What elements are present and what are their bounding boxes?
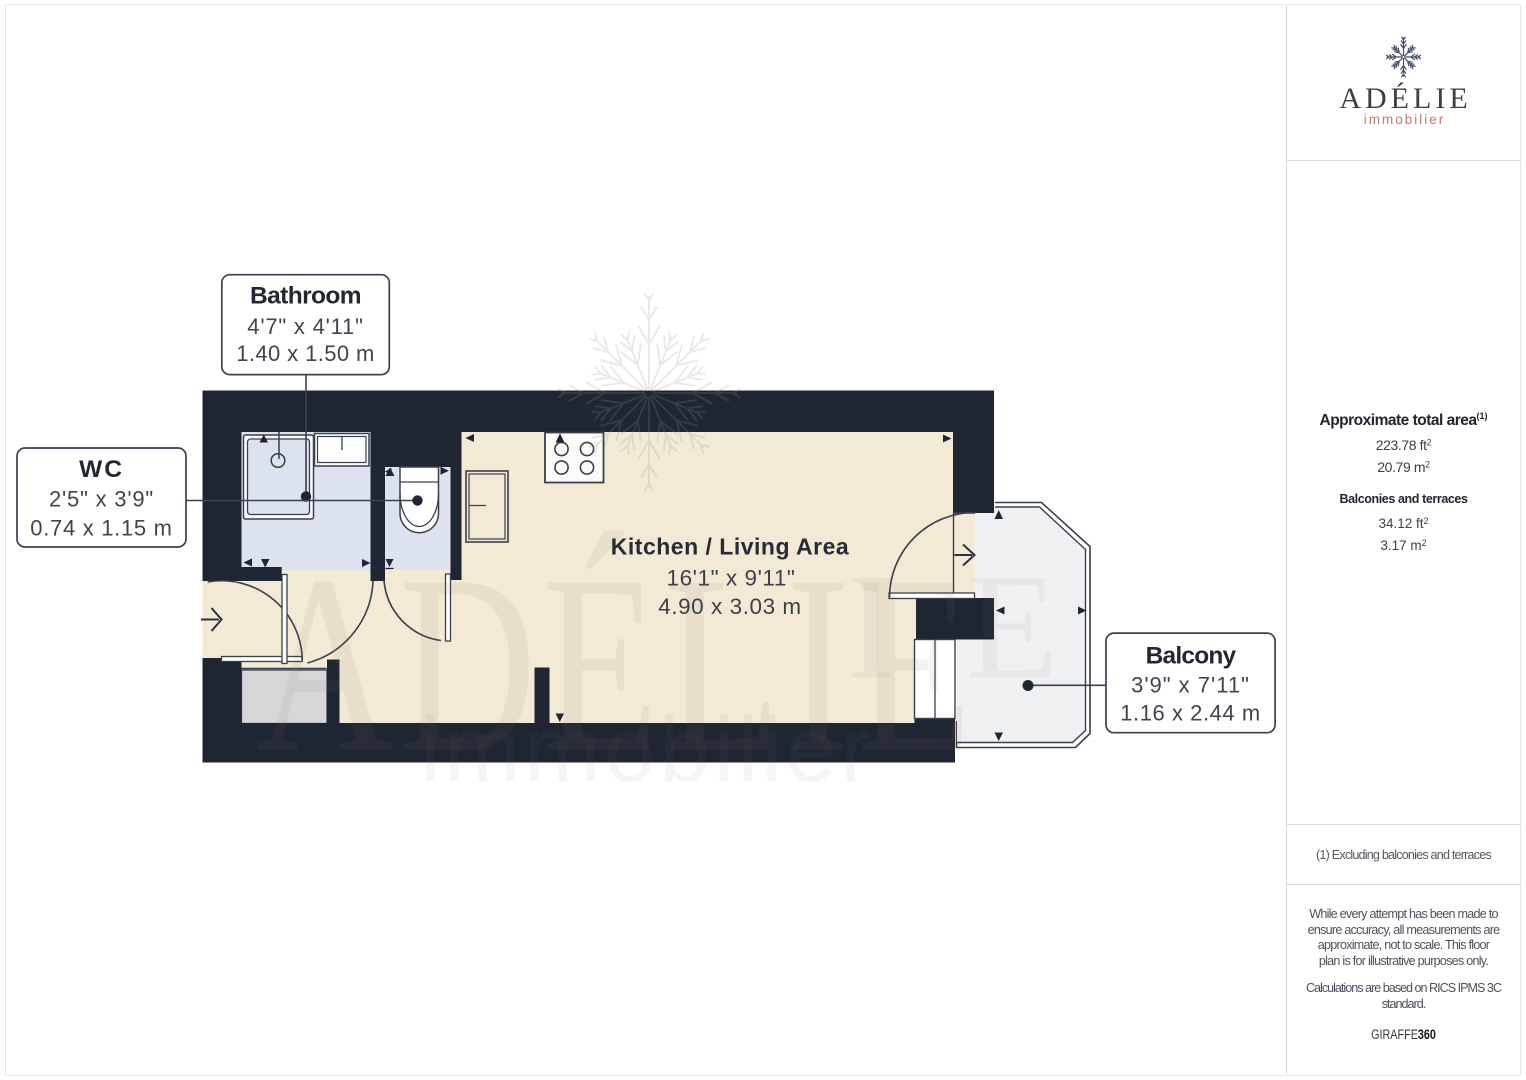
svg-text:0.74 x 1.15 m: 0.74 x 1.15 m (30, 516, 172, 541)
svg-text:1.40 x 1.50 m: 1.40 x 1.50 m (236, 341, 375, 366)
svg-text:Kitchen / Living Area: Kitchen / Living Area (611, 534, 849, 560)
svg-text:Bathroom: Bathroom (250, 283, 361, 310)
svg-text:1.16 x 2.44 m: 1.16 x 2.44 m (1120, 701, 1260, 726)
svg-text:4'7" x 4'11": 4'7" x 4'11" (247, 314, 363, 339)
svg-text:immobilier: immobilier (420, 699, 874, 801)
svg-text:WC: WC (79, 456, 124, 483)
svg-text:2'5" x 3'9": 2'5" x 3'9" (49, 487, 154, 512)
svg-text:Balcony: Balcony (1146, 643, 1237, 670)
svg-text:4.90 x 3.03 m: 4.90 x 3.03 m (658, 594, 801, 619)
svg-text:I: I (846, 542, 896, 710)
svg-text:3'9" x 7'11": 3'9" x 7'11" (1131, 673, 1250, 698)
svg-text:16'1" x 9'11": 16'1" x 9'11" (667, 566, 796, 591)
